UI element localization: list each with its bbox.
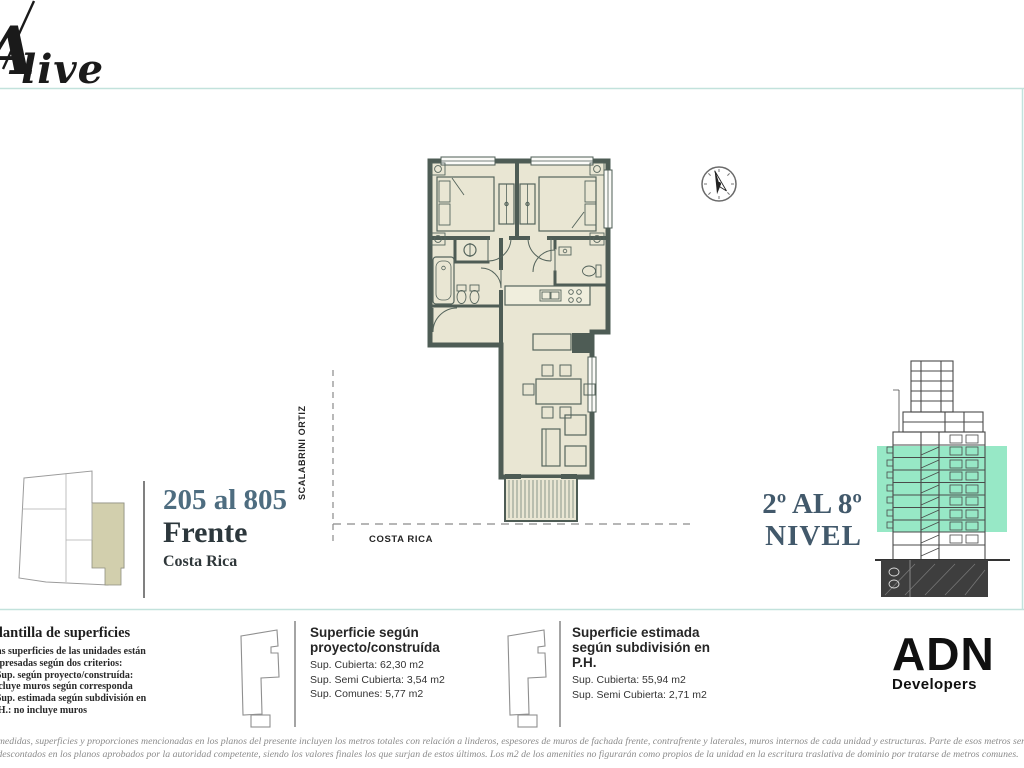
developer-name: ADN [892, 633, 995, 675]
level-range: 2º AL 8º [690, 488, 862, 520]
surface-item: Sup. Semi Cubierta: 2,71 m2 [572, 689, 762, 703]
surface-ph-title: Superficie estimada [572, 625, 762, 640]
surface-item: Sup. Comunes: 5,77 m2 [310, 688, 500, 702]
key-plan [19, 471, 124, 585]
legend-line: - Sup. según proyecto/construída: [0, 670, 225, 682]
surface-item: Sup. Semi Cubierta: 3,54 m2 [310, 674, 500, 688]
surface-ph-title: P.H. [572, 655, 762, 670]
legend-line: incluye muros según corresponda [0, 681, 225, 693]
surfaces-legend: Plantilla de superficies Las superficies… [0, 625, 225, 717]
brand-logo: live [21, 46, 104, 93]
disclaimer: Las medidas, superficies y proporciones … [0, 736, 1024, 761]
legend-line: - Sup. estimada según subdivisión en [0, 693, 225, 705]
developer-logo: ADN Developers [892, 633, 995, 693]
surface-project-title: proyecto/construída [310, 640, 500, 655]
legend-title: Plantilla de superficies [0, 625, 225, 642]
floor-plan [430, 157, 612, 521]
unit-outline-icon [508, 630, 546, 727]
legend-line: Las superficies de las unidades están [0, 646, 225, 658]
surface-project-title: Superficie según [310, 625, 500, 640]
unit-street: Costa Rica [163, 553, 363, 571]
building-section [875, 361, 1010, 597]
compass-icon [702, 167, 736, 201]
level-word: NIVEL [690, 520, 862, 552]
legend-line: expresadas según dos criterios: [0, 658, 225, 670]
surface-ph-title: según subdivisión en [572, 640, 762, 655]
unit-outline-icon [241, 630, 279, 727]
disclaimer-line: descontados en los planos aprobados por … [0, 749, 1024, 762]
disclaimer-line: Las medidas, superficies y proporciones … [0, 736, 1024, 749]
unit-info: 205 al 805 Frente Costa Rica [163, 485, 363, 571]
surface-item: Sup. Cubierta: 62,30 m2 [310, 659, 500, 673]
unit-facing: Frente [163, 516, 363, 549]
unit-range: 205 al 805 [163, 485, 363, 516]
wardrobe-column [572, 333, 592, 353]
legend-line: P.H.: no incluye muros [0, 705, 225, 717]
surface-project-block: Superficie según proyecto/construída Sup… [310, 625, 500, 702]
kitchen-counter [505, 286, 590, 305]
balcony-post-right [561, 474, 577, 479]
surface-ph-block: Superficie estimada según subdivisión en… [572, 625, 762, 702]
basement [881, 560, 988, 597]
surface-item: Sup. Cubierta: 55,94 m2 [572, 674, 762, 688]
balcony-post-left [505, 474, 521, 479]
street-label-costa-rica: COSTA RICA [369, 534, 433, 545]
level-info: 2º AL 8º NIVEL [690, 488, 862, 552]
level-highlight-band [877, 446, 1007, 532]
